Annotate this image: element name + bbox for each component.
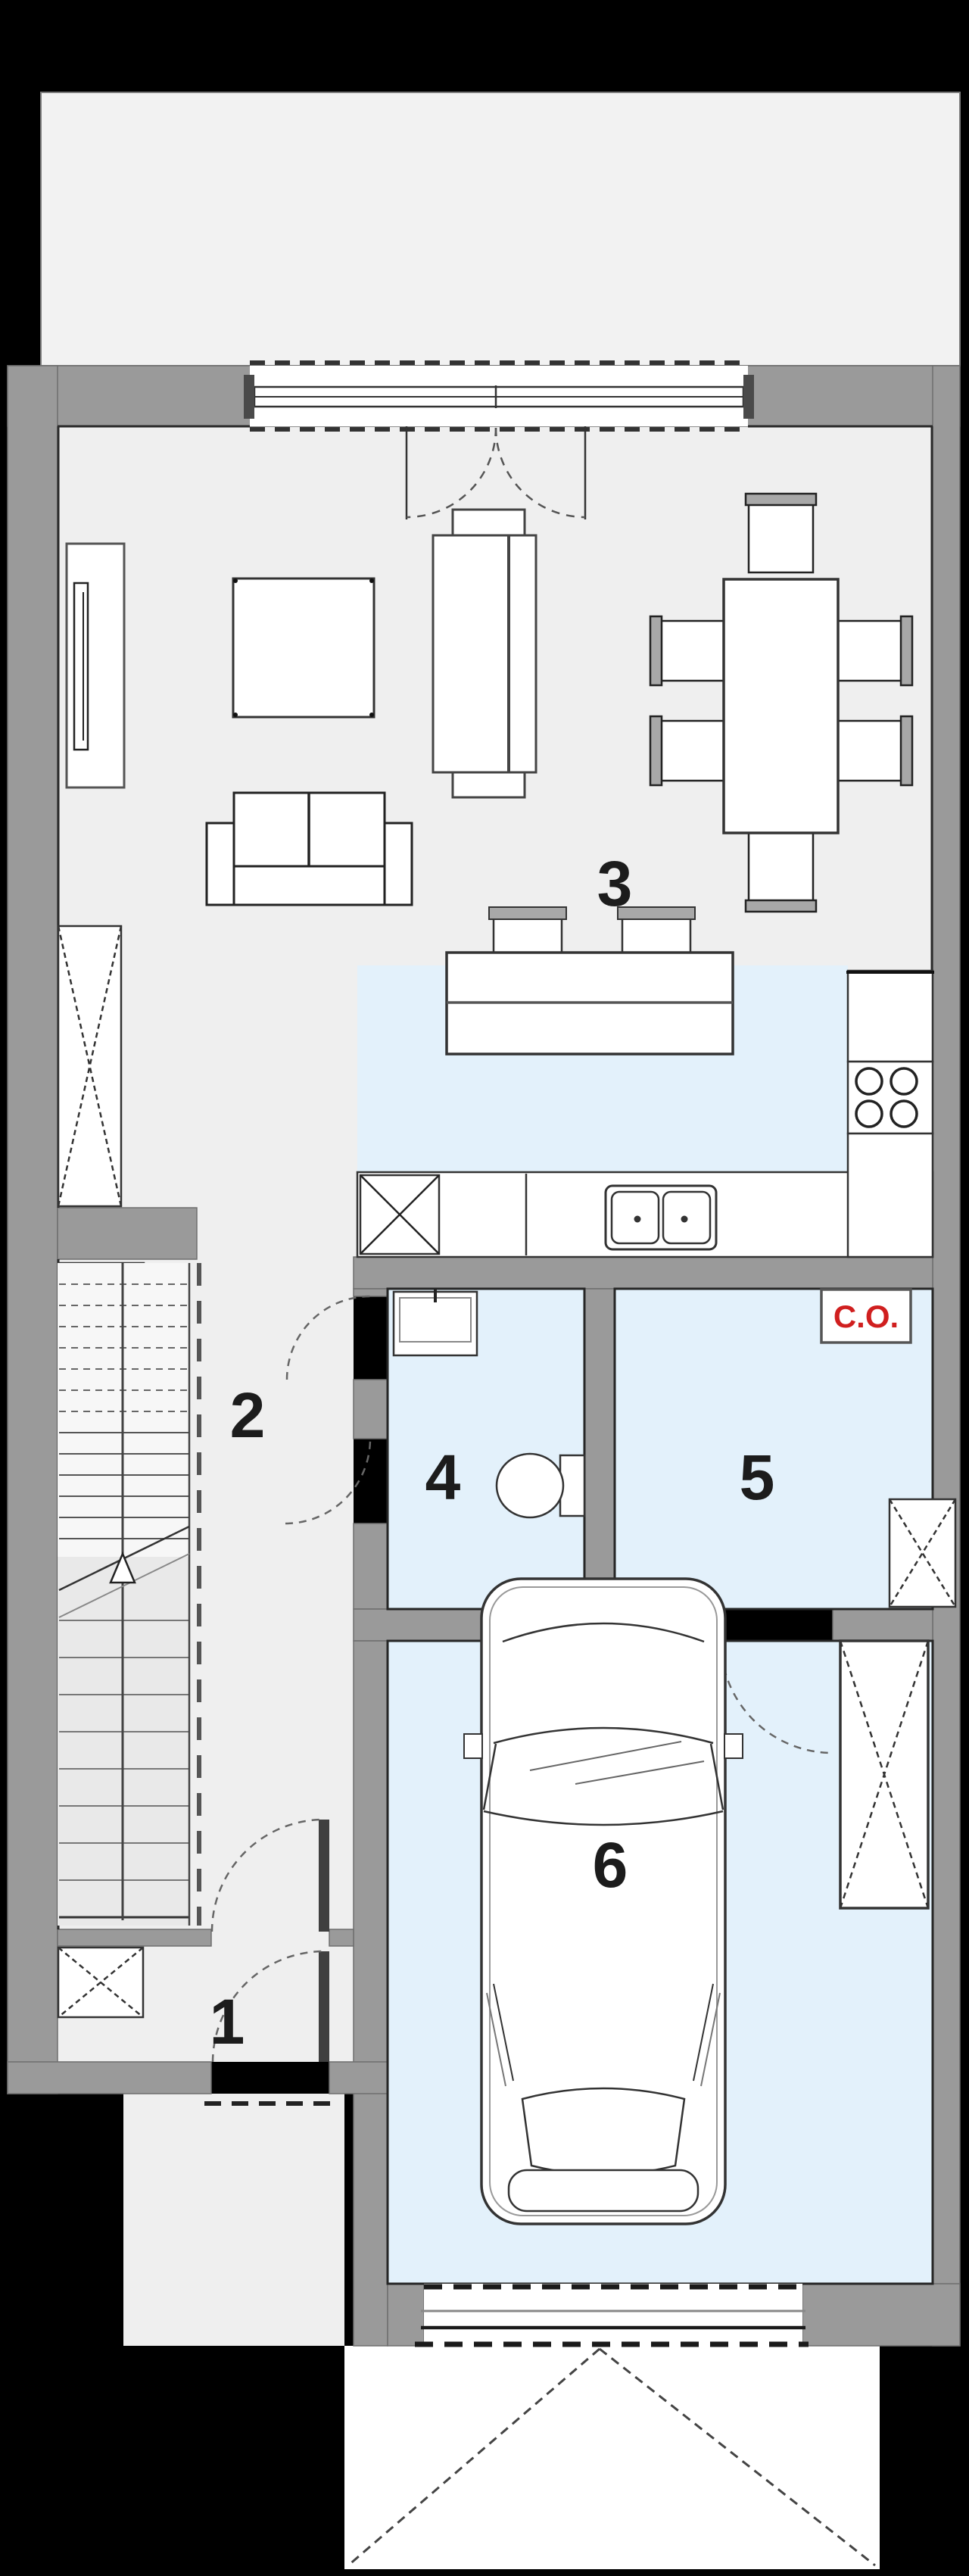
car-grille (522, 2088, 684, 2175)
car-bumper (509, 2170, 698, 2211)
wall-1-2-left (58, 1929, 211, 1946)
label-room-1: 1 (210, 1986, 245, 2057)
wall-hall-garage (354, 1641, 388, 2346)
kitchen-wall-column (846, 971, 934, 1257)
shaft-garage (840, 1641, 928, 1908)
door-leaf (319, 1951, 329, 2062)
toilet-bowl (497, 1454, 563, 1517)
wall-garage-door-right (802, 2284, 960, 2346)
faucet-dot-right (681, 1216, 688, 1223)
wall-kitchen-south (354, 1257, 933, 1289)
tv-screen (74, 583, 88, 750)
staircase (58, 1263, 199, 1926)
door-leaf (319, 1820, 329, 1932)
porch-floor (123, 2094, 344, 2346)
stool-2 (622, 918, 690, 954)
stool-1 (494, 918, 562, 954)
chair-left-1 (656, 621, 724, 681)
wall-entry-south-left (8, 2062, 211, 2094)
wall-left (8, 366, 58, 2094)
wall-garage-door-left (388, 2284, 424, 2346)
car (464, 1579, 743, 2224)
closet-entry (58, 1948, 143, 2017)
faucet-dot-left (634, 1216, 641, 1223)
wall-rooms-south-right (833, 1609, 933, 1641)
dining-table (724, 579, 838, 833)
couch-arm-top (453, 510, 525, 535)
couch-large (433, 510, 536, 797)
wall-bath-divider (584, 1289, 615, 1609)
boiler-label: C.O. (833, 1299, 899, 1334)
kitchen-counter-bottom (357, 1172, 933, 1257)
window-end-right (743, 375, 754, 419)
label-room-4: 4 (425, 1442, 461, 1513)
double-sink (606, 1186, 716, 1249)
shaft-boiler-room (890, 1499, 955, 1607)
boiler-tag: C.O. (821, 1290, 911, 1343)
wall-stair-stub (58, 1208, 197, 1259)
chair-top (749, 504, 813, 572)
label-room-6: 6 (593, 1829, 628, 1901)
chair-right-1 (838, 621, 906, 681)
wall-hall-east-c (354, 1523, 388, 1609)
counter-column-lower (848, 1134, 933, 1257)
terrace (41, 92, 960, 366)
tv-cabinet (67, 544, 124, 787)
chair-left-2 (656, 721, 724, 781)
coffee-table (233, 579, 374, 717)
sofa-two-seat (207, 793, 412, 905)
couch-arm-bottom (453, 772, 525, 797)
sofa-back (234, 866, 385, 905)
tall-cabinet (848, 971, 933, 1062)
wall-hall-east-b (354, 1380, 388, 1439)
couch-body (433, 535, 536, 772)
wall-right (933, 366, 960, 2346)
wall-hall-east-a (354, 1289, 388, 1296)
chair-bottom (749, 833, 813, 902)
sofa-arm-right (385, 823, 412, 905)
wall-1-2-right (329, 1929, 354, 1946)
washbasin (394, 1289, 477, 1355)
wall-entry-south-right (329, 2062, 388, 2094)
car-mirror-left (464, 1734, 482, 1758)
toilet (497, 1454, 584, 1517)
window-end-left (244, 375, 254, 419)
shaft-left-wall (58, 926, 121, 1206)
label-room-2: 2 (230, 1380, 266, 1451)
label-room-5: 5 (740, 1442, 775, 1513)
car-mirror-right (724, 1734, 743, 1758)
garage-door (415, 2284, 809, 2346)
sofa-arm-left (207, 823, 234, 905)
floor-plan-drawing: C.O. (0, 0, 969, 2576)
label-room-3: 3 (597, 848, 633, 919)
floor-plan-page: C.O. (0, 0, 969, 2576)
chair-right-2 (838, 721, 906, 781)
driveway (344, 2346, 880, 2569)
